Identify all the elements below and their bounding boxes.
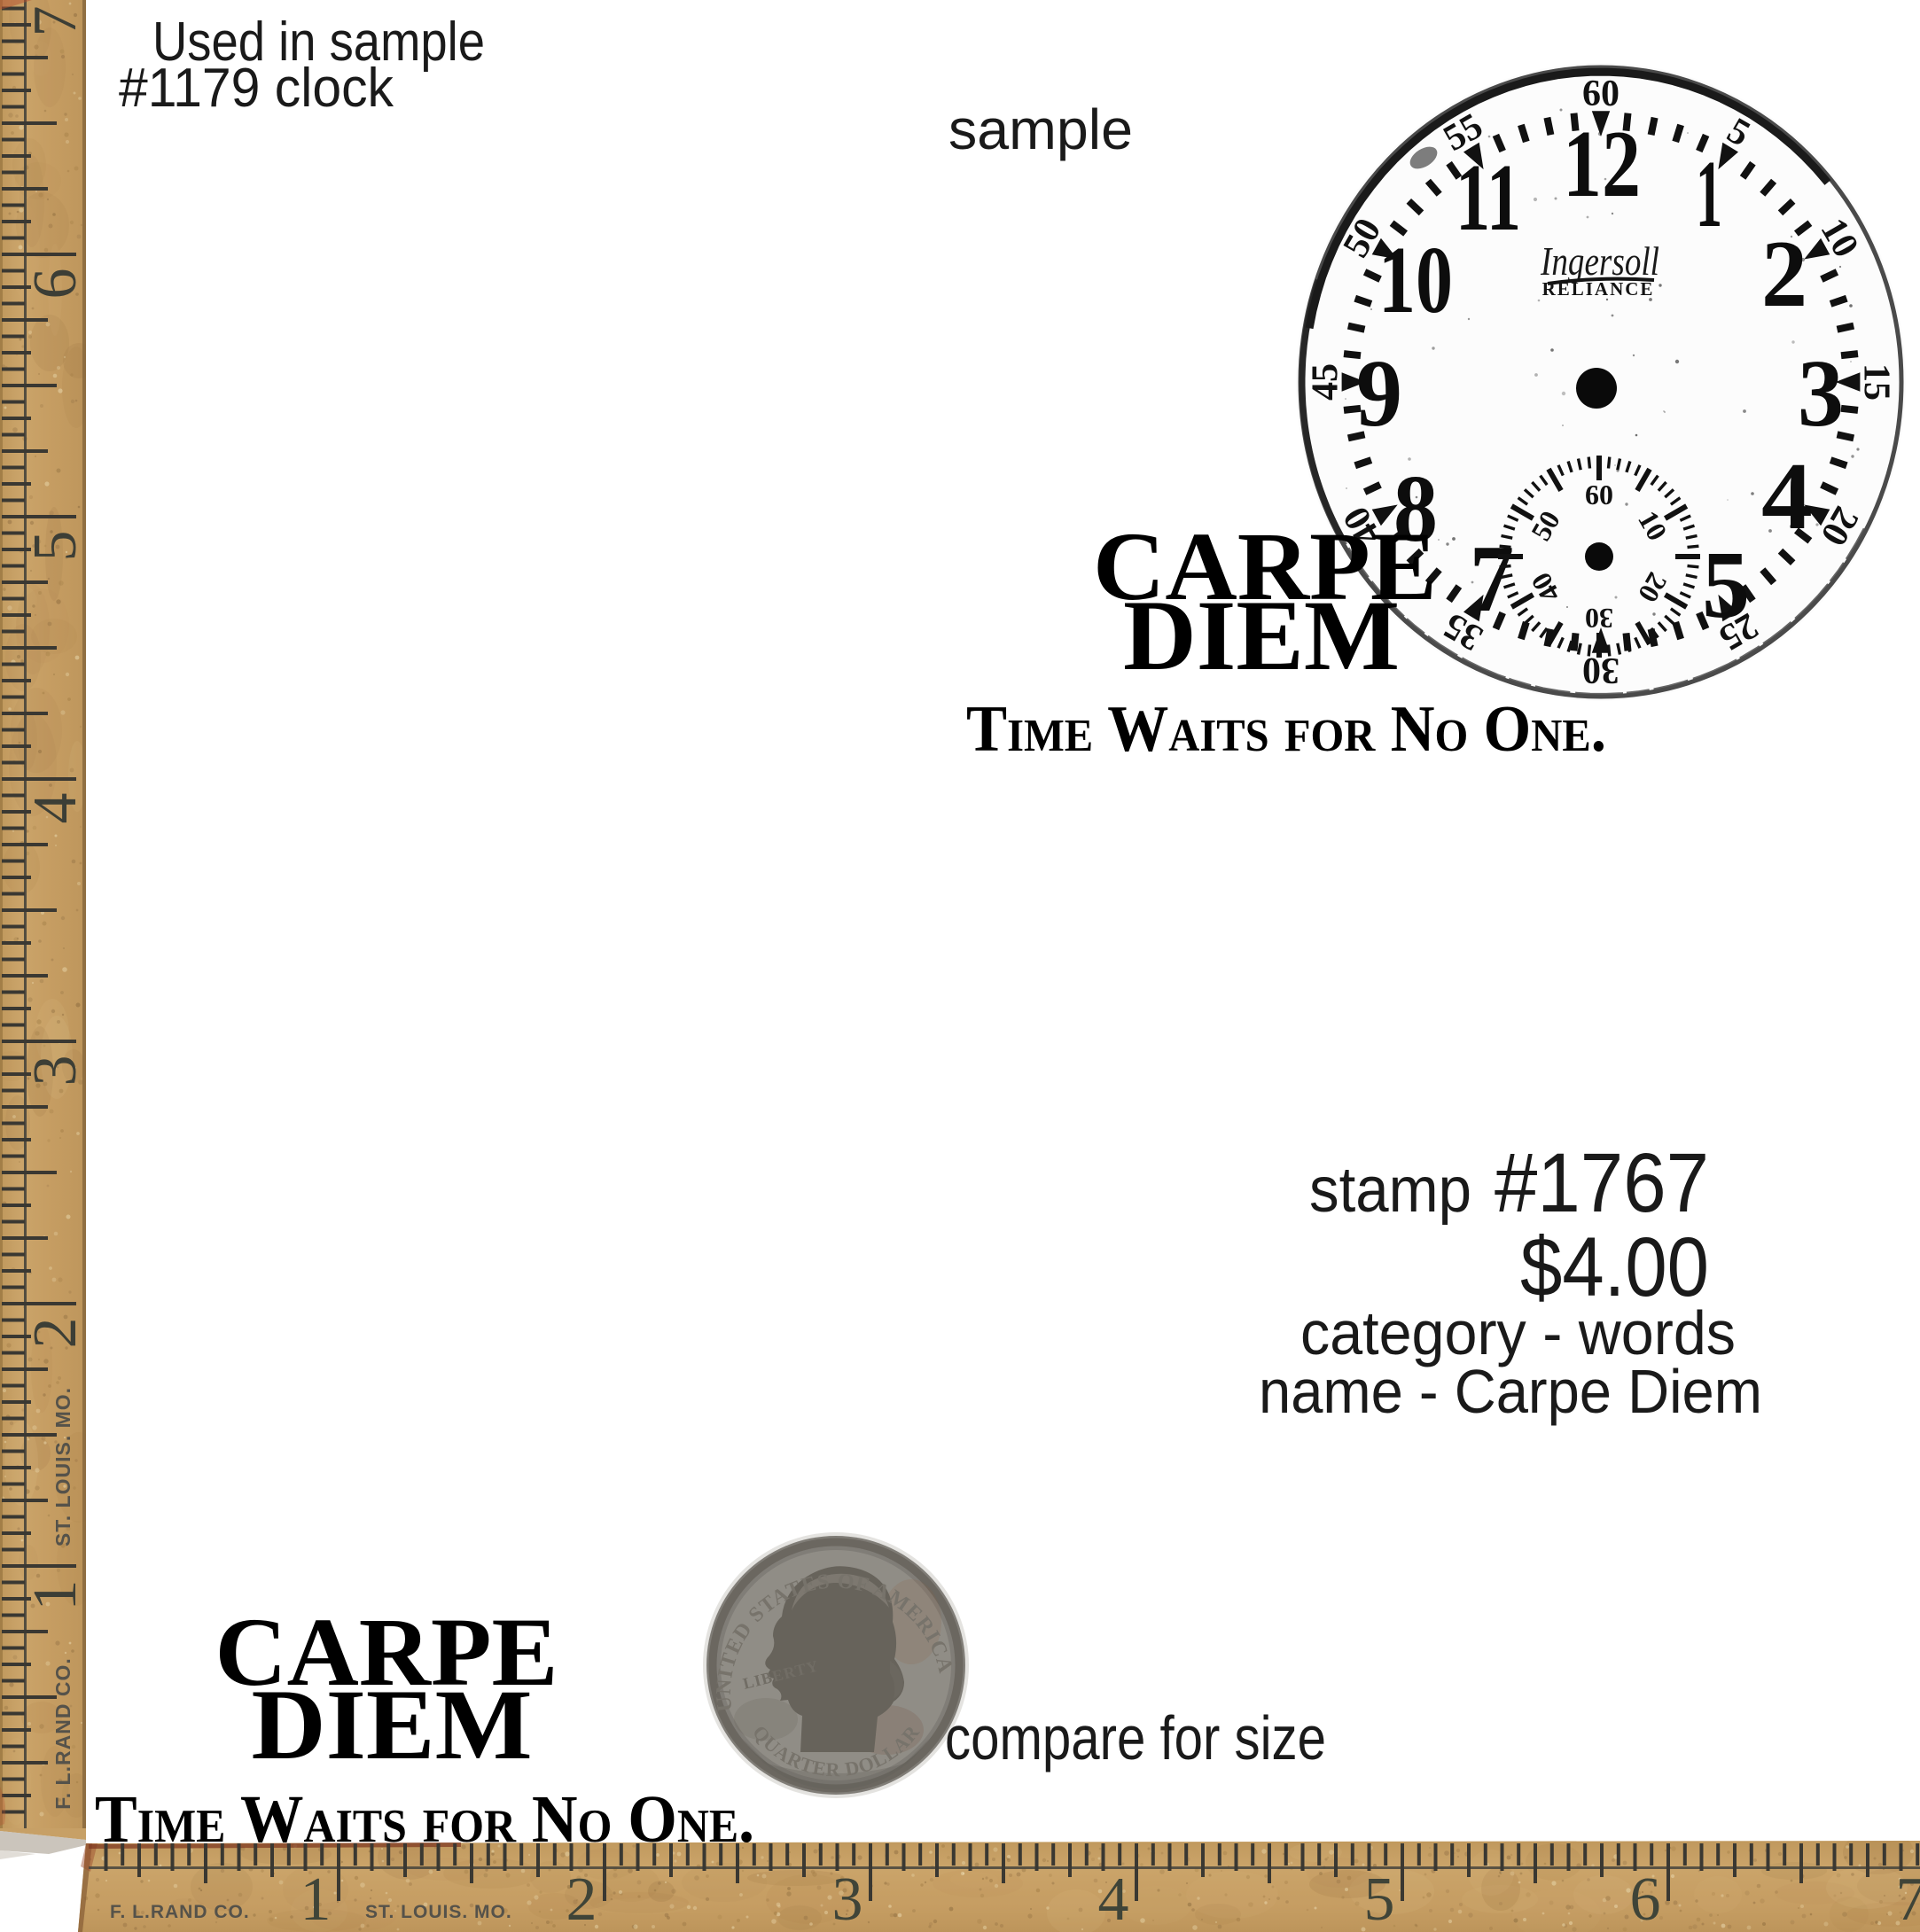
svg-text:9: 9 [1356, 341, 1402, 447]
svg-text:2: 2 [1761, 222, 1807, 327]
svg-text:5: 5 [21, 531, 90, 562]
svg-text:4: 4 [21, 793, 90, 824]
svg-text:5: 5 [1364, 1866, 1395, 1932]
svg-text:12: 12 [1563, 112, 1641, 217]
svg-text:#1767: #1767 [1495, 1136, 1709, 1230]
svg-text:2: 2 [21, 1318, 90, 1349]
svg-text:DIEM: DIEM [1123, 580, 1400, 691]
svg-text:1: 1 [21, 1580, 90, 1611]
svg-text:3: 3 [1798, 341, 1844, 447]
svg-text:15: 15 [1856, 363, 1897, 401]
svg-text:RELIANCE: RELIANCE [1542, 278, 1655, 300]
svg-text:6: 6 [1630, 1866, 1661, 1932]
svg-text:F. L.RAND CO.: F. L.RAND CO. [110, 1902, 250, 1922]
svg-text:ST. LOUIS. MO.: ST. LOUIS. MO. [51, 1387, 74, 1546]
svg-text:Ingersoll: Ingersoll [1540, 238, 1659, 284]
svg-text:5: 5 [1702, 533, 1750, 638]
svg-text:6: 6 [21, 269, 90, 300]
svg-text:30: 30 [1585, 603, 1613, 635]
svg-text:2: 2 [566, 1866, 597, 1932]
svg-text:7: 7 [21, 6, 90, 37]
svg-text:10: 10 [1378, 228, 1453, 333]
svg-text:#1179 clock: #1179 clock [119, 58, 394, 119]
svg-text:45: 45 [1305, 363, 1346, 401]
svg-text:DIEM: DIEM [252, 1670, 533, 1780]
svg-text:60: 60 [1582, 74, 1620, 114]
svg-text:stamp: stamp [1309, 1155, 1471, 1226]
svg-text:4: 4 [1761, 444, 1813, 549]
svg-text:1: 1 [1696, 142, 1722, 247]
svg-text:F. L.RAND CO.: F. L.RAND CO. [51, 1657, 74, 1809]
svg-text:compare for size: compare for size [945, 1703, 1326, 1772]
svg-text:sample: sample [948, 97, 1133, 161]
svg-text:ST. LOUIS. MO.: ST. LOUIS. MO. [365, 1902, 512, 1922]
svg-text:7: 7 [1470, 526, 1514, 632]
svg-text:60: 60 [1585, 479, 1613, 510]
svg-text:3: 3 [21, 1056, 90, 1087]
svg-text:4: 4 [1098, 1866, 1129, 1932]
svg-text:3: 3 [832, 1866, 863, 1932]
svg-text:Time Waits for No One.: Time Waits for No One. [95, 1782, 754, 1857]
svg-text:11: 11 [1456, 145, 1521, 251]
svg-text:Time Waits for No One.: Time Waits for No One. [966, 693, 1606, 766]
svg-text:7: 7 [1896, 1866, 1920, 1932]
svg-text:1: 1 [300, 1866, 332, 1932]
svg-text:name - Carpe Diem: name - Carpe Diem [1259, 1357, 1762, 1426]
